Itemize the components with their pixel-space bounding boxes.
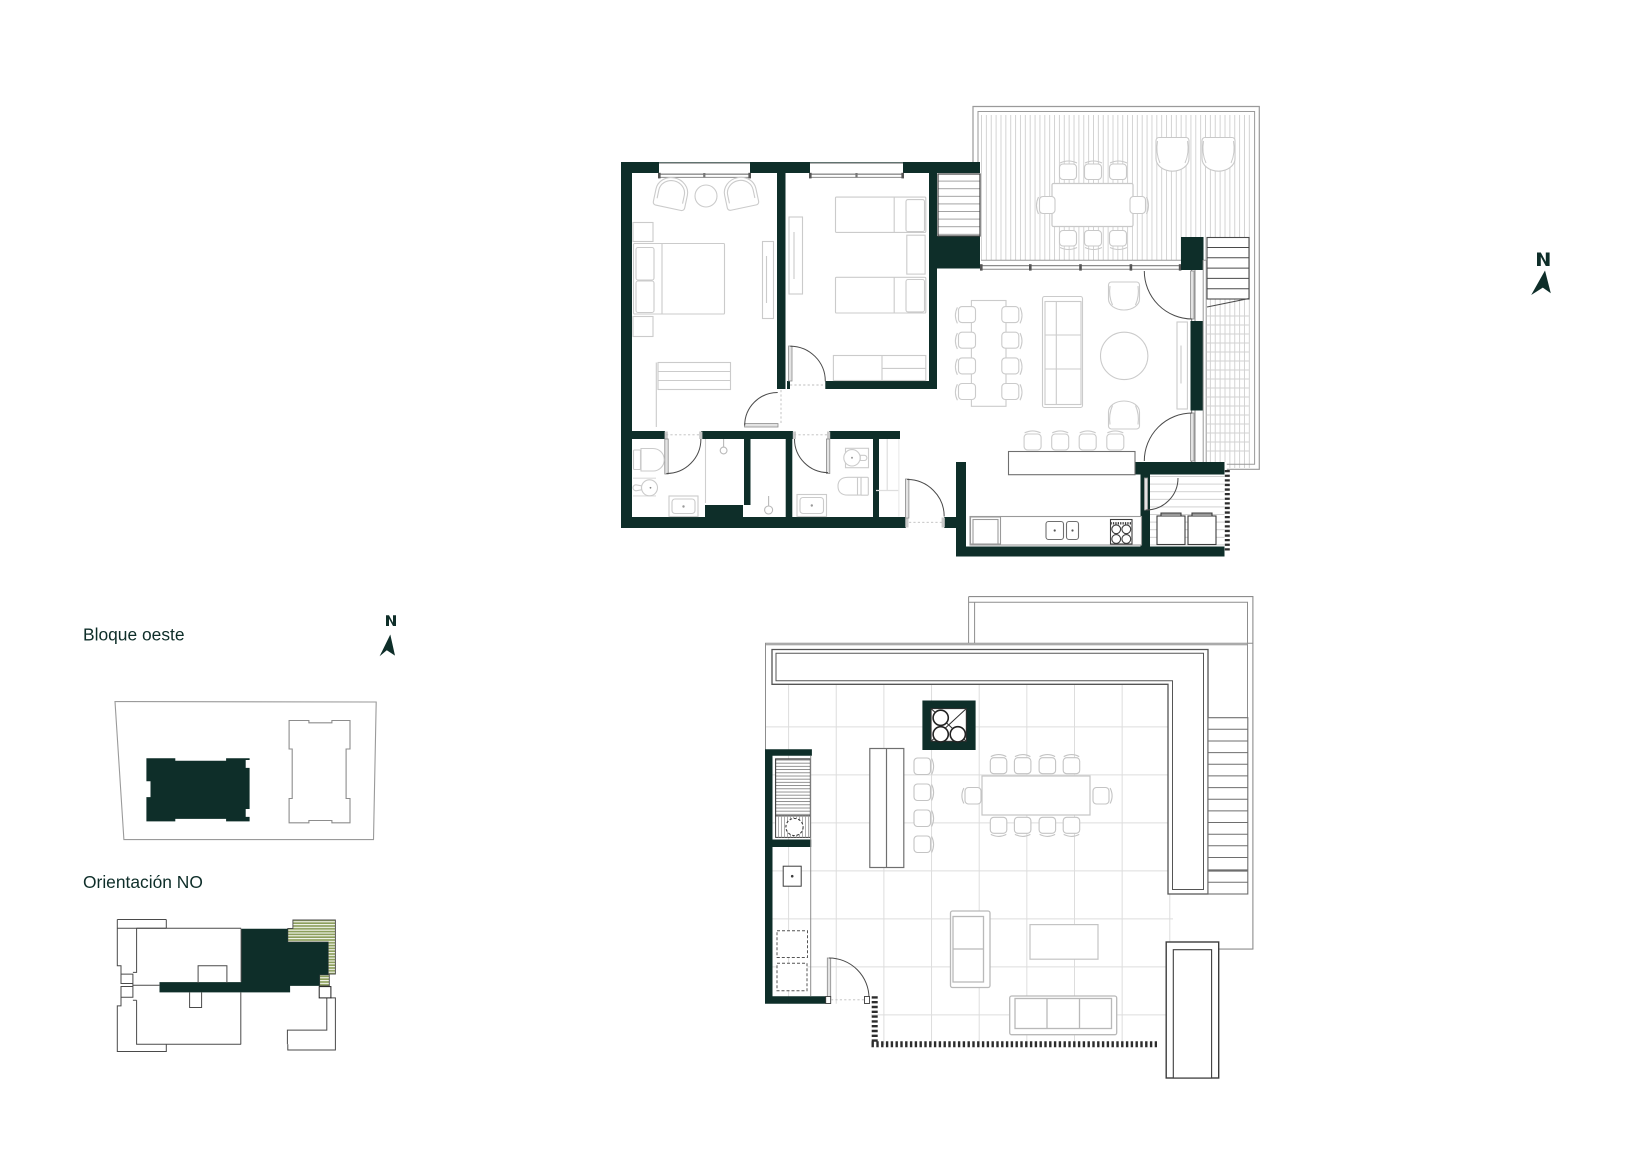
svg-text:Orientación NO: Orientación NO (83, 872, 203, 892)
svg-text:Bloque oeste: Bloque oeste (83, 625, 185, 645)
